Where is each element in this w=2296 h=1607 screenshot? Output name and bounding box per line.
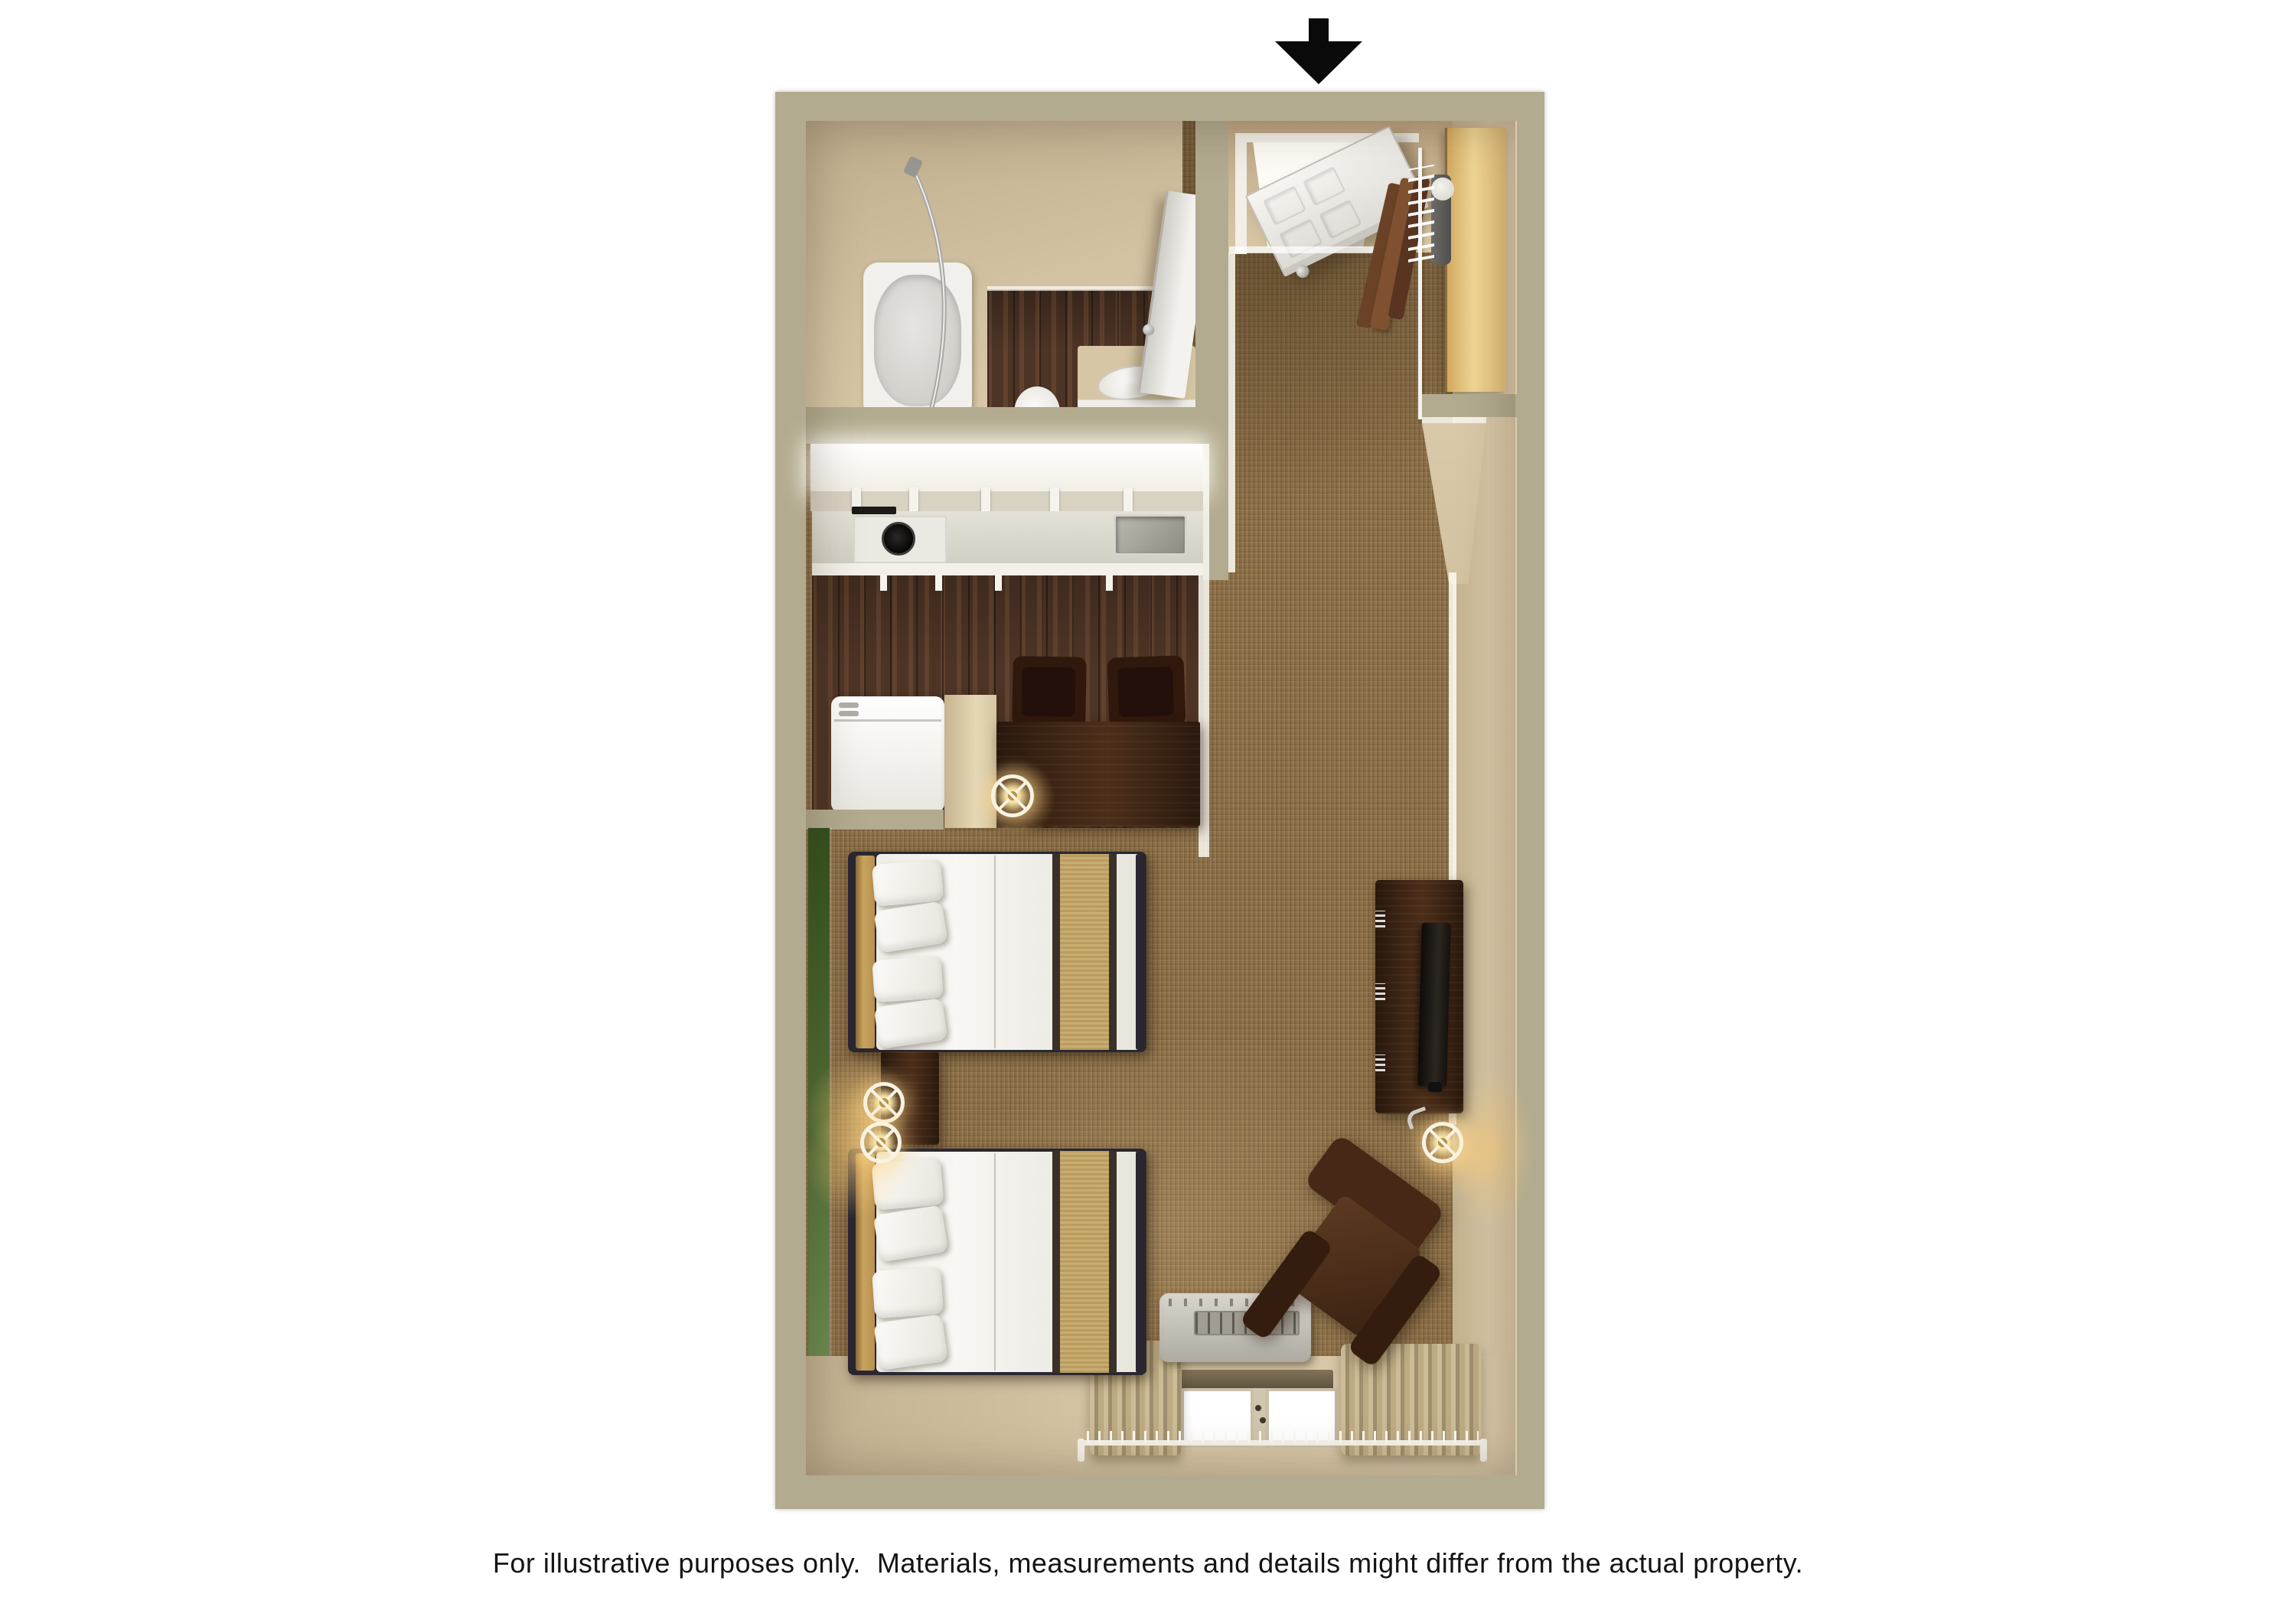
upper-cabinets — [810, 444, 1203, 491]
pillow — [872, 1157, 944, 1211]
closet-stub-wall — [1422, 394, 1544, 417]
dresser-handle — [1375, 983, 1385, 1000]
bed-runner — [1052, 1151, 1117, 1373]
tv-stand-foot — [1428, 1082, 1442, 1092]
refrigerator-door-seam — [834, 719, 941, 722]
stub-wall-baseboard — [1422, 417, 1486, 423]
refrigerator-handle — [839, 702, 859, 708]
base-cabinet-divider — [1106, 574, 1113, 591]
dining-chair — [1107, 655, 1186, 728]
door-panel — [1263, 185, 1306, 226]
door-threshold — [1229, 246, 1375, 253]
lamp-finial — [879, 1098, 889, 1107]
sheet-fold — [994, 856, 996, 1048]
chair-seat — [1021, 667, 1075, 716]
lamp-finial — [1438, 1138, 1447, 1147]
bed-2 — [848, 1149, 1146, 1375]
base-cabinet-divider — [935, 574, 942, 591]
disclaimer-caption: For illustrative purposes only. Material… — [0, 1547, 2296, 1579]
window-latch — [1255, 1405, 1261, 1411]
chair-seat — [1117, 667, 1174, 717]
headboard — [856, 856, 875, 1048]
shower-head-icon — [903, 155, 923, 178]
entrance-arrow-icon — [1273, 18, 1365, 84]
kitchen-end-panel — [944, 695, 996, 828]
pillow — [872, 1266, 944, 1319]
bed-1 — [848, 852, 1146, 1052]
counter-front-edge — [812, 563, 1203, 575]
desk-lamp — [991, 774, 1034, 817]
door-panel — [1303, 166, 1346, 207]
lamp-finial — [876, 1138, 885, 1147]
kitchen-bedroom-stub-wall — [775, 810, 944, 830]
bed-foot-rail — [1136, 854, 1146, 1051]
clothes-hangers — [1408, 165, 1434, 262]
lamp-finial — [1008, 791, 1017, 800]
pillow — [872, 859, 944, 907]
base-cabinet-divider — [995, 574, 1002, 591]
cooktop-controls — [852, 507, 896, 514]
nightstand-lamp — [863, 1082, 905, 1123]
nightstand-lamp — [860, 1122, 902, 1163]
curtain-rings — [1087, 1431, 1479, 1443]
entry-door-frame-jamb — [1235, 133, 1247, 254]
curtain-rod-end — [1078, 1439, 1084, 1462]
dresser-handle — [1375, 911, 1385, 927]
bed-foot-rail — [1136, 1151, 1146, 1373]
dining-chair — [1012, 656, 1087, 728]
bed-runner — [1052, 854, 1117, 1051]
armchair — [1263, 1162, 1450, 1376]
base-cabinet-divider — [880, 574, 887, 591]
television — [1417, 923, 1451, 1087]
closet-shelf — [1445, 128, 1506, 392]
floor-lamp — [1422, 1122, 1463, 1163]
curtain-rod-end — [1480, 1439, 1487, 1462]
pillow — [874, 998, 947, 1049]
bathroom-south-wall — [775, 407, 1228, 444]
sheet-fold — [994, 1153, 996, 1371]
kitchen-sink — [1114, 514, 1187, 556]
refrigerator — [831, 696, 944, 813]
refrigerator-handle — [839, 711, 859, 716]
pillow — [873, 1314, 947, 1371]
window-latch — [1260, 1417, 1266, 1423]
headboard — [856, 1153, 875, 1371]
stored-white-roll — [1431, 178, 1454, 200]
pillow — [872, 956, 943, 1002]
shower-curtain-rod — [880, 153, 995, 436]
cooktop-burner — [882, 522, 915, 556]
floor-plan-page: For illustrative purposes only. Material… — [0, 0, 2296, 1607]
dresser-handle — [1375, 1054, 1385, 1071]
